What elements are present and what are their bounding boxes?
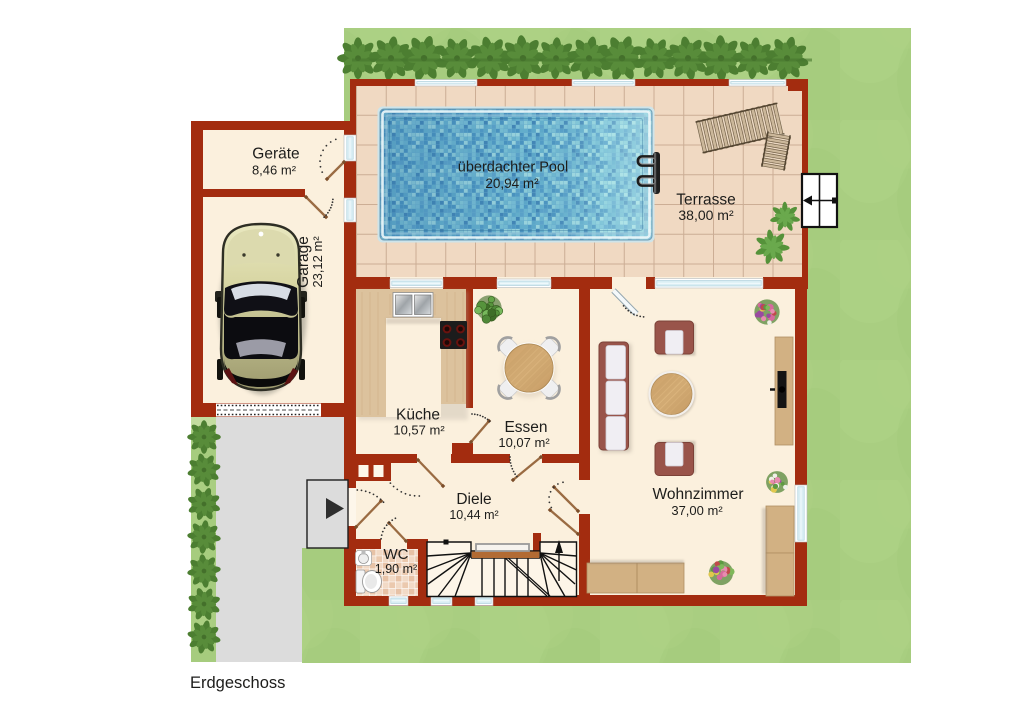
svg-text:1,90 m²: 1,90 m² bbox=[375, 562, 417, 576]
svg-text:37,00 m²: 37,00 m² bbox=[671, 503, 723, 518]
svg-text:Wohnzimmer: Wohnzimmer bbox=[652, 486, 743, 503]
svg-text:WC: WC bbox=[384, 546, 409, 563]
svg-text:23,12 m²: 23,12 m² bbox=[310, 236, 325, 288]
svg-text:20,94 m²: 20,94 m² bbox=[485, 176, 539, 191]
svg-text:10,07 m²: 10,07 m² bbox=[498, 435, 550, 450]
svg-text:Diele: Diele bbox=[456, 491, 491, 508]
svg-text:38,00 m²: 38,00 m² bbox=[678, 207, 734, 223]
svg-text:überdachter Pool: überdachter Pool bbox=[458, 160, 568, 176]
svg-text:10,57 m²: 10,57 m² bbox=[393, 423, 445, 438]
svg-text:Erdgeschoss: Erdgeschoss bbox=[190, 674, 285, 692]
svg-text:8,46 m²: 8,46 m² bbox=[252, 163, 297, 178]
svg-text:Terrasse: Terrasse bbox=[676, 192, 735, 209]
svg-text:Essen: Essen bbox=[504, 419, 547, 436]
svg-text:Geräte: Geräte bbox=[252, 146, 299, 163]
svg-text:Küche: Küche bbox=[396, 407, 440, 424]
svg-text:10,44 m²: 10,44 m² bbox=[449, 508, 498, 522]
